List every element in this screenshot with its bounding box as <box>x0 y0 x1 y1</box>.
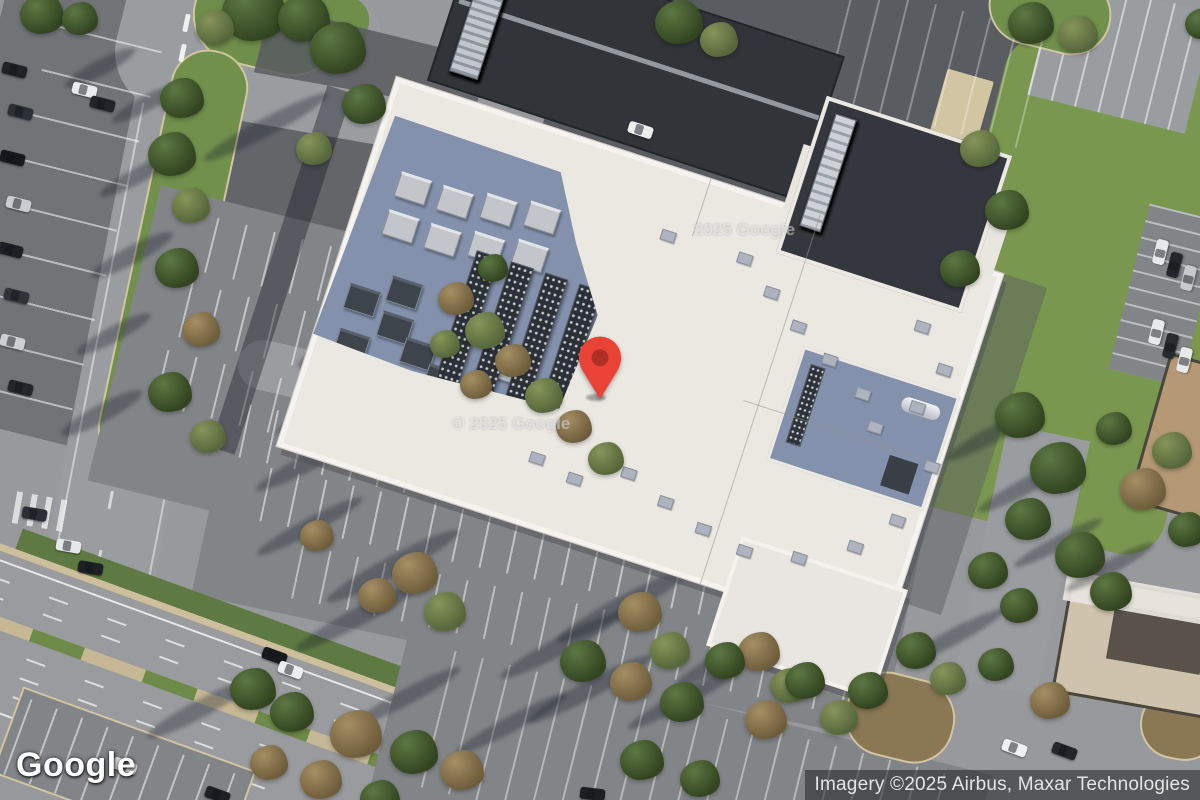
imagery-watermark: © 2025 Google <box>452 414 570 434</box>
car <box>1180 264 1198 291</box>
map-pin-dot <box>592 349 609 366</box>
car <box>0 333 26 351</box>
car <box>1162 332 1180 359</box>
car <box>7 103 34 121</box>
google-logo[interactable]: Google <box>16 746 136 785</box>
attribution-text: Imagery ©2025 Airbus, Maxar Technologies <box>805 770 1200 800</box>
car <box>1001 738 1029 758</box>
car <box>77 560 104 576</box>
car <box>1166 251 1184 278</box>
car <box>0 241 24 259</box>
map-pin-icon[interactable] <box>577 335 623 401</box>
map-canvas[interactable]: 2025 Google © 2025 Google Google Imagery… <box>0 0 1200 800</box>
car <box>579 787 605 800</box>
map-pin-body <box>579 337 621 399</box>
imagery-watermark: 2025 Google <box>694 220 795 240</box>
car <box>204 785 232 800</box>
car <box>0 149 26 167</box>
car <box>627 120 654 139</box>
car <box>89 95 116 113</box>
car <box>1051 741 1079 761</box>
car <box>7 379 34 397</box>
car <box>3 287 30 305</box>
car <box>21 506 48 522</box>
car <box>1152 238 1170 265</box>
car <box>1176 346 1194 373</box>
car <box>5 195 32 213</box>
car <box>55 538 82 554</box>
car <box>1148 318 1166 345</box>
car <box>277 660 305 680</box>
car <box>1 61 28 79</box>
